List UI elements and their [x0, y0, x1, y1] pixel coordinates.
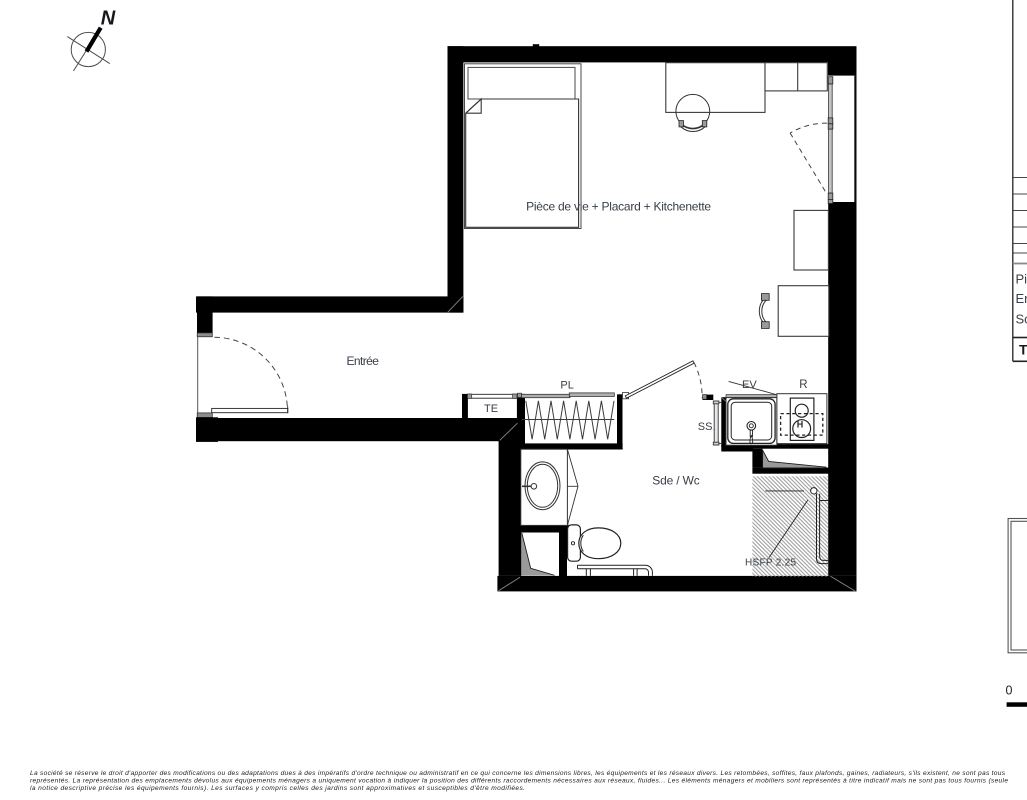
- svg-text:Sde / Wc: Sde / Wc: [652, 473, 699, 487]
- svg-text:la notice descriptive précise: la notice descriptive précise les équipe…: [30, 785, 525, 792]
- svg-text:Entrée: Entrée: [347, 354, 380, 368]
- svg-text:représentés. La représentation: représentés. La représentation des empla…: [30, 778, 1008, 785]
- svg-text:TE: TE: [484, 403, 498, 415]
- svg-text:R: R: [799, 379, 807, 391]
- svg-text:Sc: Sc: [1016, 312, 1027, 327]
- svg-text:H: H: [797, 420, 804, 430]
- svg-text:EV: EV: [742, 379, 757, 391]
- svg-text:Pièce de vie + Placard + Kitch: Pièce de vie + Placard + Kitchenette: [526, 200, 711, 214]
- svg-text:0: 0: [1006, 684, 1013, 698]
- svg-text:En: En: [1016, 291, 1027, 306]
- svg-text:N: N: [101, 8, 116, 30]
- svg-text:La société se réserve le droit: La société se réserve le droit d'apporte…: [30, 770, 1006, 777]
- svg-text:Piè: Piè: [1016, 272, 1027, 287]
- svg-text:T1: T1: [1019, 342, 1027, 358]
- svg-text:HSFP 2.25: HSFP 2.25: [745, 558, 796, 569]
- svg-text:SS.: SS.: [698, 421, 716, 433]
- svg-text:PL: PL: [560, 379, 573, 391]
